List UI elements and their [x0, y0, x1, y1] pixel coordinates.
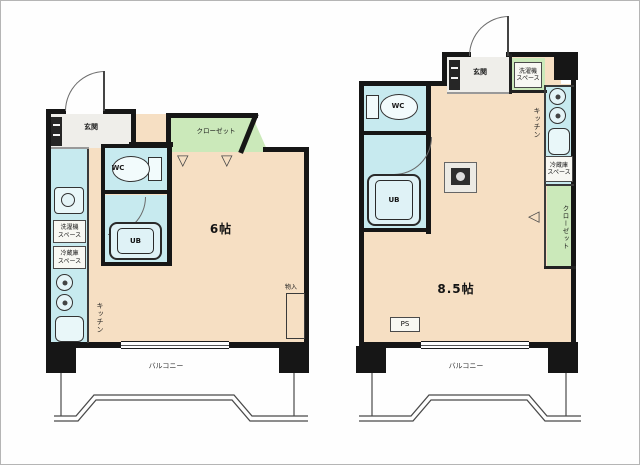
wall-segment — [571, 52, 576, 349]
entrance-step-right — [447, 92, 509, 94]
balcony-label-left: バルコニー — [126, 362, 206, 370]
wall-segment — [166, 113, 171, 147]
bathtub-icon: UB — [109, 222, 162, 260]
pillar — [279, 346, 309, 373]
stove-burner-icon — [549, 88, 566, 105]
shoe-cabinet-icon — [451, 77, 458, 79]
washer-space-label: 洗濯機 スペース — [53, 220, 86, 243]
wall-segment — [101, 144, 105, 266]
wall-segment — [426, 81, 431, 234]
wall-segment — [101, 262, 171, 266]
closet-label: クローゼット — [552, 189, 568, 265]
counter-edge-right — [544, 85, 574, 87]
balcony-label-right: バルコニー — [426, 362, 506, 370]
bath-label: UB — [388, 196, 399, 204]
wall-segment — [101, 190, 171, 194]
washbasin-icon — [61, 193, 75, 207]
storage-box — [286, 293, 305, 339]
counter-edge-left — [87, 149, 89, 343]
pillar — [356, 346, 386, 373]
balcony-window-left — [121, 341, 229, 349]
balcony-railing-left — [46, 371, 311, 426]
balcony-railing-right — [356, 371, 586, 426]
shoe-cabinet-icon — [53, 124, 60, 126]
kitchen-label: キッチン — [528, 94, 541, 152]
fridge-space-label: 冷蔵庫 スペース — [53, 246, 86, 269]
wall-segment — [442, 52, 447, 84]
kitchen-label: キッチン — [91, 287, 104, 349]
entrance-label: 玄関 — [451, 68, 509, 76]
fridge-space-label: 冷蔵庫 スペース — [545, 156, 573, 182]
entrance-step-left — [51, 147, 89, 149]
wc-label: WC — [105, 164, 131, 172]
storage-label: 物入 — [277, 285, 305, 292]
toilet-icon — [366, 95, 379, 119]
pillar — [46, 346, 76, 373]
wall-segment — [263, 147, 309, 152]
wall-segment — [363, 228, 431, 232]
entry-door-arc — [65, 71, 105, 111]
stove-burner-icon — [549, 107, 566, 124]
bath-label: UB — [130, 237, 141, 245]
wall-segment — [363, 131, 429, 135]
balcony-window-right — [421, 341, 529, 349]
wall-segment — [544, 266, 576, 269]
shoe-cabinet-icon — [51, 117, 62, 146]
wall-segment — [509, 90, 547, 93]
sink-icon — [55, 316, 84, 342]
closet-label: クローゼット — [176, 128, 256, 135]
wall-segment — [166, 113, 258, 118]
entry-door-leaf — [103, 71, 105, 111]
wall-segment — [509, 54, 512, 94]
entrance-label: 玄関 — [61, 123, 121, 131]
wall-segment — [359, 81, 447, 86]
wall-segment — [101, 144, 171, 148]
pillar — [554, 52, 578, 80]
pipe-space-label: PS — [390, 317, 420, 332]
room-size-label-right: 8.5帖 — [421, 283, 491, 297]
wall-segment — [544, 184, 574, 186]
folding-door-icon: ▽ — [177, 153, 189, 168]
entry-door-leaf — [507, 16, 509, 56]
stove-burner-icon — [56, 274, 73, 291]
toilet-icon — [148, 157, 162, 181]
bathtub-icon: UB — [367, 174, 421, 226]
wall-segment — [167, 144, 172, 266]
folding-door-icon: ◁ — [528, 209, 540, 224]
wc-label: WC — [385, 102, 411, 110]
washer-space-label: 洗濯機 スペース — [514, 62, 542, 88]
floor-plan: 玄関 WC UB 洗濯機 スペース 冷蔵庫 スペース キッチン クローゼット ▽… — [0, 0, 640, 465]
room-size-label-left: 6帖 — [191, 223, 251, 237]
wall-segment — [359, 81, 364, 349]
folding-door-icon: ▽ — [221, 153, 233, 168]
stove-burner-icon — [56, 294, 73, 311]
entry-door-arc — [469, 16, 509, 56]
sink-icon — [548, 128, 570, 155]
washing-machine-icon — [444, 162, 477, 193]
shoe-cabinet-icon — [53, 134, 60, 136]
pillar — [548, 346, 578, 373]
